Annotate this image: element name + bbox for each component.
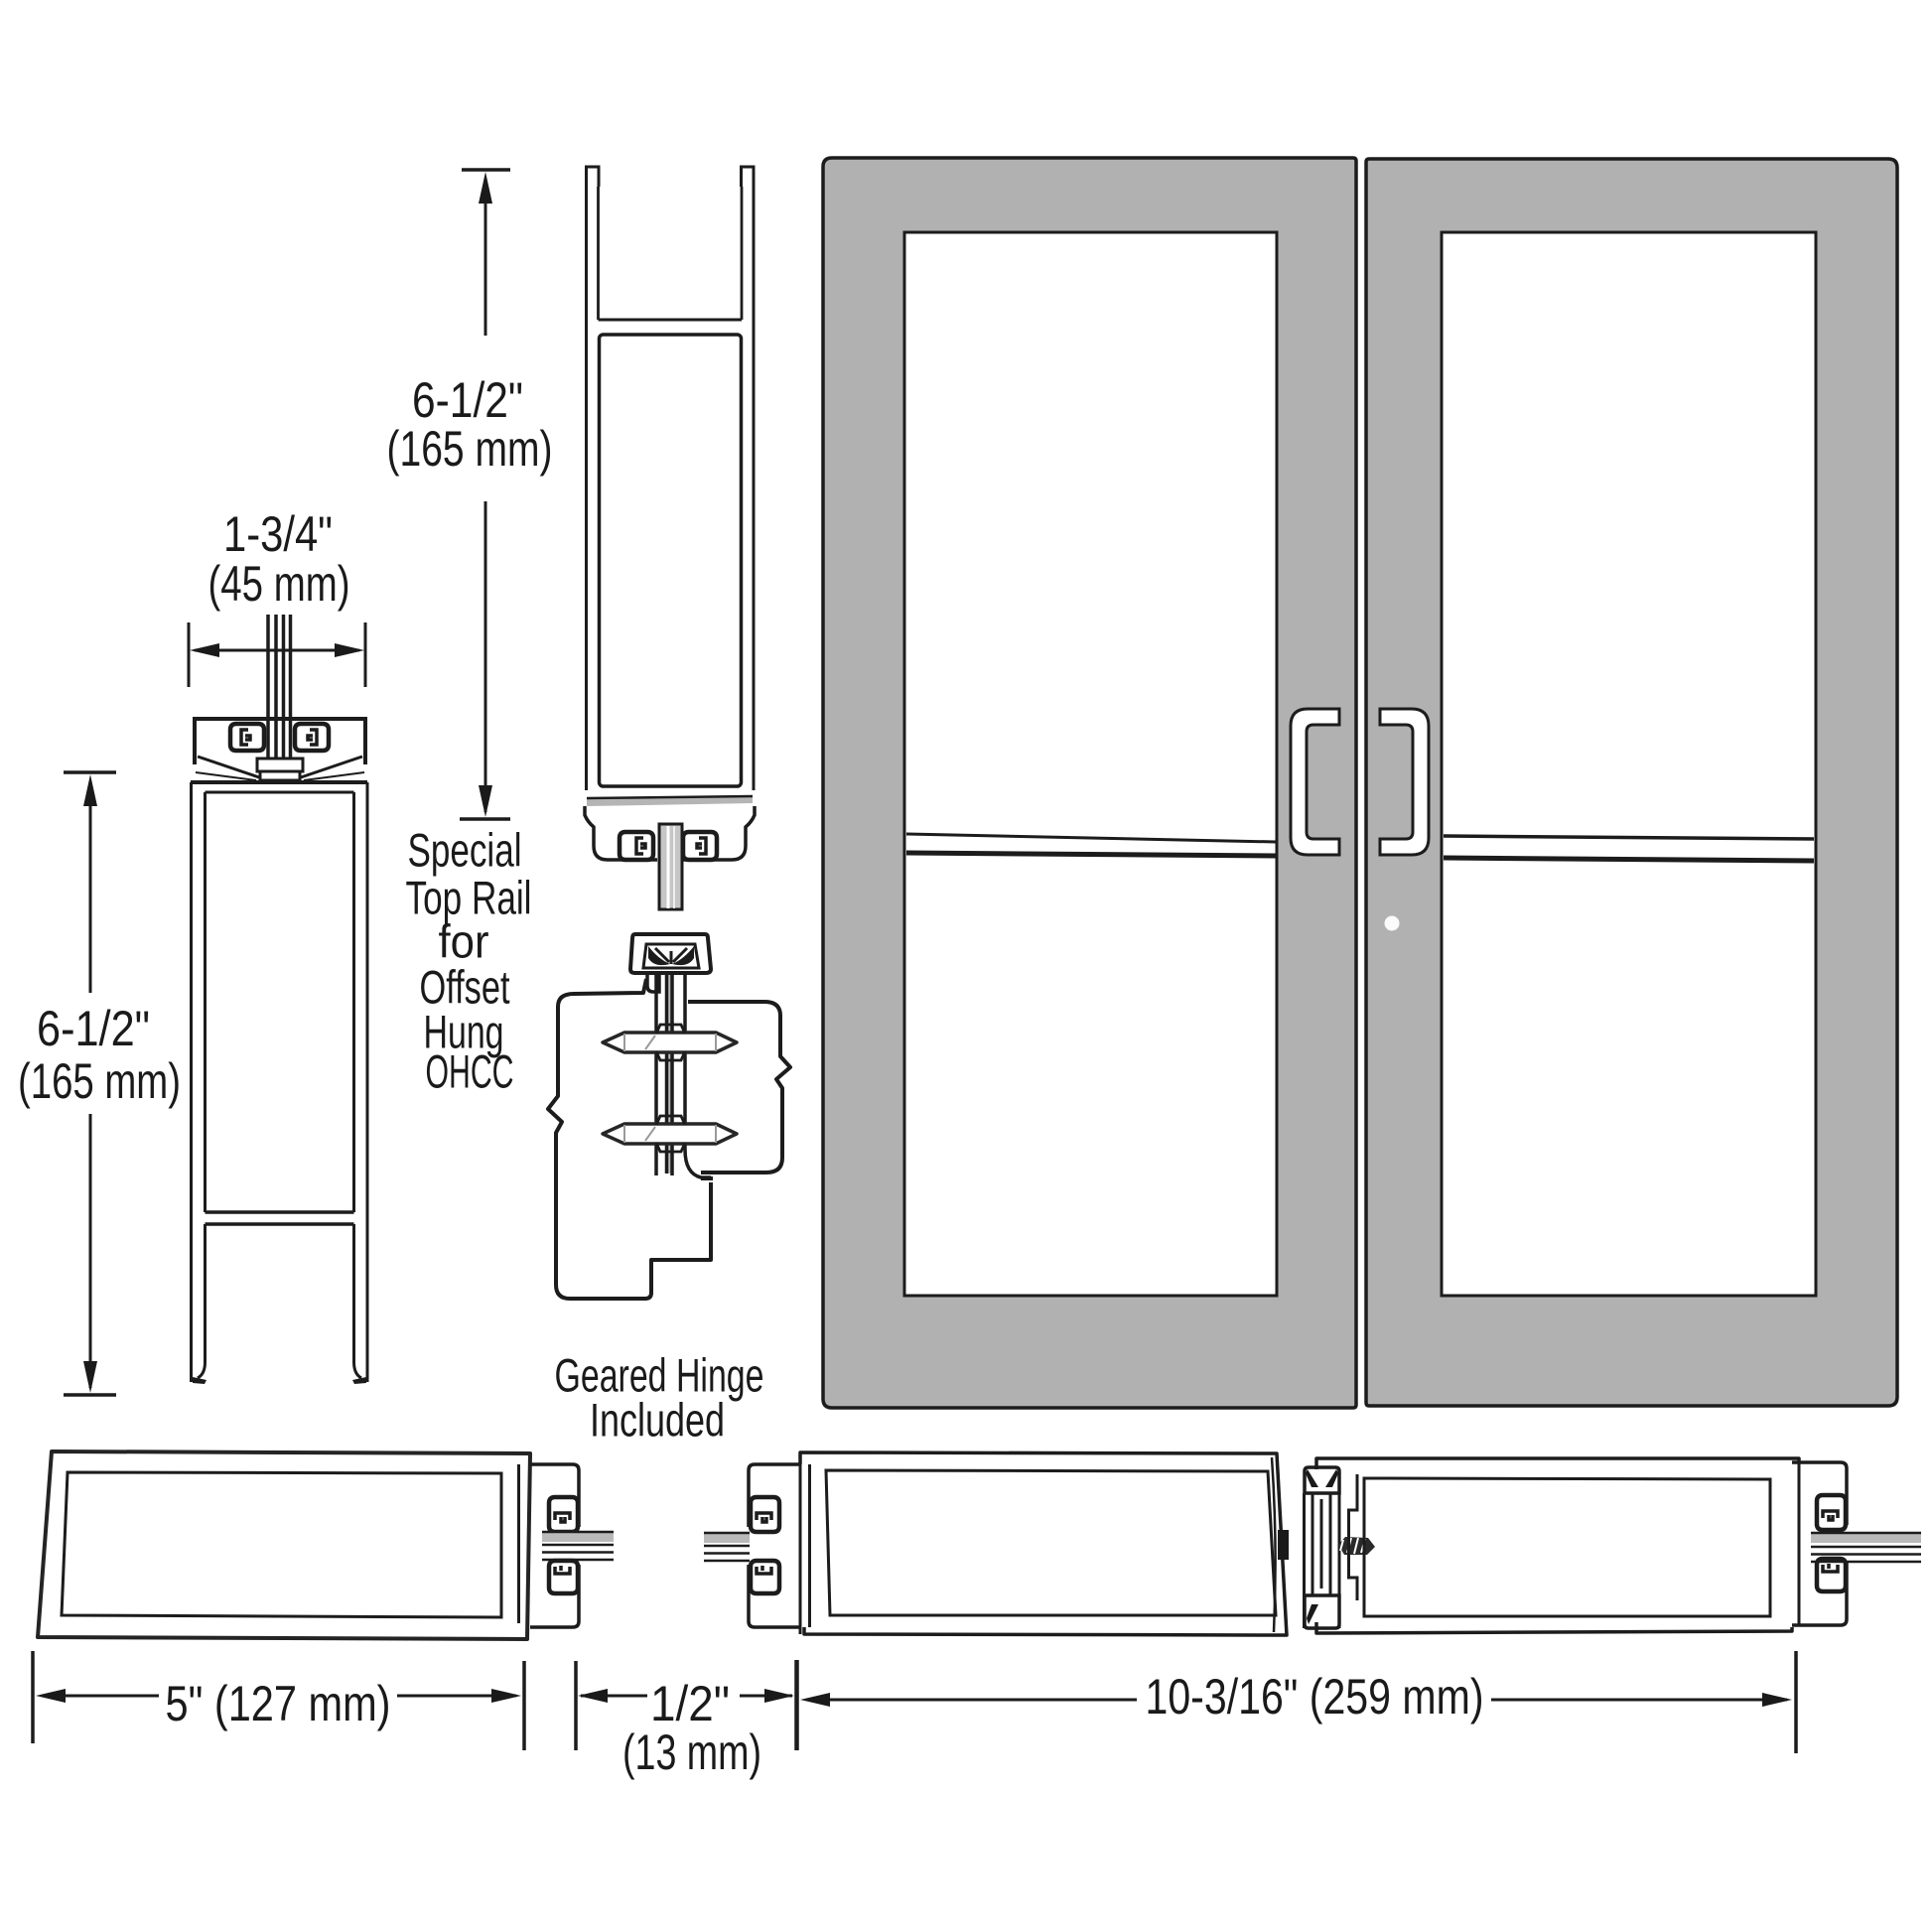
svg-text:6-1/2": 6-1/2" — [37, 1001, 150, 1056]
svg-text:(13 mm): (13 mm) — [622, 1725, 761, 1780]
svg-text:5" (127 mm): 5" (127 mm) — [166, 1676, 391, 1731]
svg-text:(165 mm): (165 mm) — [387, 421, 553, 477]
svg-text:1-3/4": 1-3/4" — [223, 506, 333, 562]
svg-text:(165 mm): (165 mm) — [18, 1053, 181, 1109]
svg-text:Included: Included — [590, 1394, 725, 1447]
svg-text:10-3/16" (259 mm): 10-3/16" (259 mm) — [1146, 1669, 1484, 1725]
svg-text:(45 mm): (45 mm) — [208, 556, 350, 612]
svg-text:6-1/2": 6-1/2" — [412, 372, 523, 428]
svg-text:OHCC: OHCC — [426, 1045, 514, 1098]
svg-text:Special: Special — [408, 824, 522, 877]
svg-text:1/2": 1/2" — [650, 1676, 730, 1731]
